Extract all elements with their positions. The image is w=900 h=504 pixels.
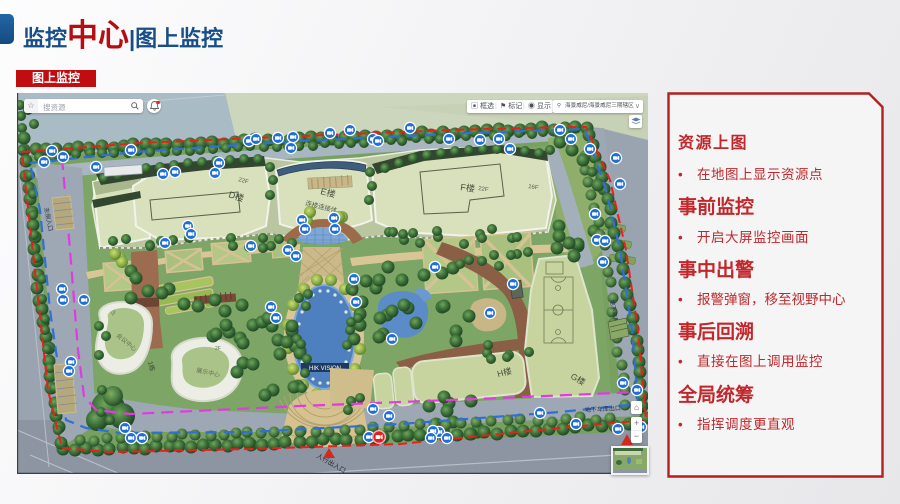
svg-text:2F: 2F: [215, 346, 221, 352]
svg-text:F楼: F楼: [460, 181, 476, 194]
